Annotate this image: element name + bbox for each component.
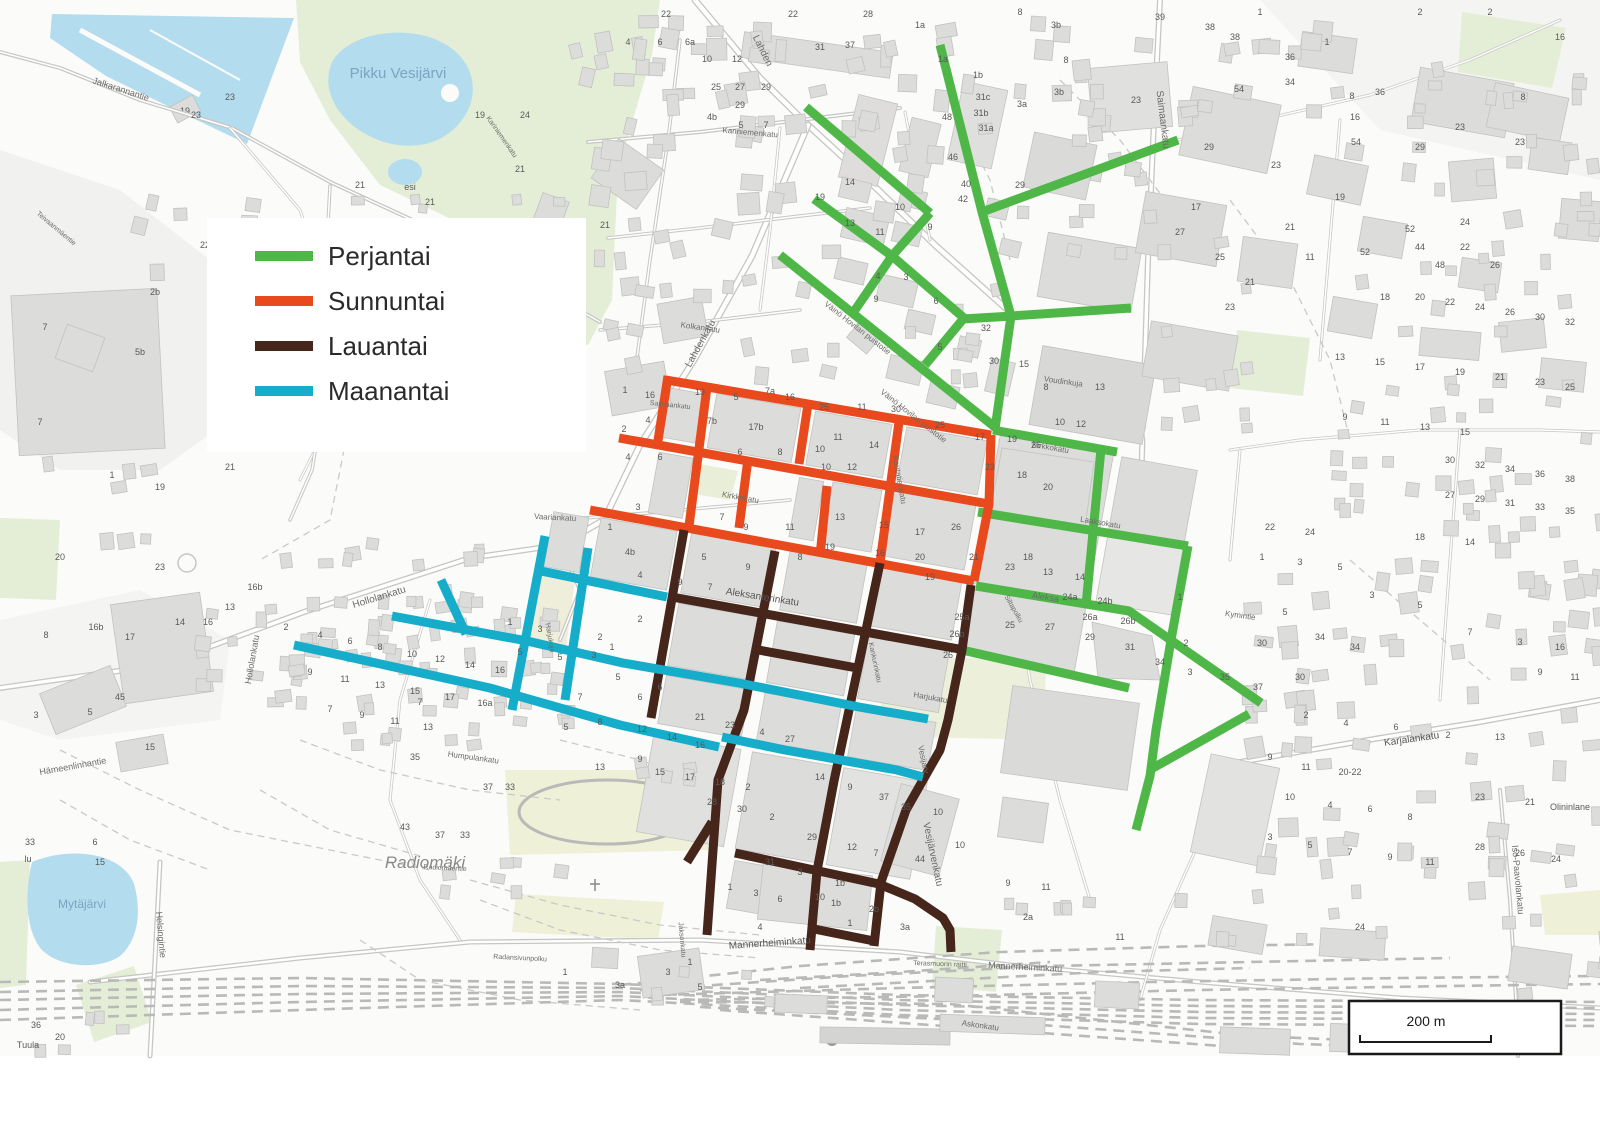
svg-text:4b: 4b	[625, 547, 635, 557]
svg-text:20: 20	[55, 552, 65, 562]
svg-text:10: 10	[702, 54, 712, 64]
svg-text:33: 33	[1535, 502, 1545, 512]
svg-text:31a: 31a	[978, 123, 993, 133]
svg-text:11: 11	[857, 402, 866, 412]
svg-text:30: 30	[1257, 638, 1267, 648]
svg-text:30: 30	[989, 356, 999, 366]
svg-text:14: 14	[465, 660, 475, 670]
svg-text:13: 13	[845, 218, 855, 228]
svg-text:4: 4	[645, 415, 650, 425]
svg-text:2: 2	[1303, 710, 1308, 720]
svg-text:26: 26	[1490, 260, 1500, 270]
svg-text:29: 29	[1015, 180, 1025, 190]
svg-text:13: 13	[1495, 732, 1505, 742]
svg-text:28: 28	[707, 797, 717, 807]
svg-text:37: 37	[435, 830, 445, 840]
svg-text:44: 44	[1415, 242, 1425, 252]
svg-text:23: 23	[155, 562, 165, 572]
svg-text:21: 21	[425, 197, 435, 207]
svg-text:20: 20	[1415, 292, 1425, 302]
svg-text:6: 6	[347, 636, 352, 646]
svg-text:21: 21	[355, 180, 365, 190]
svg-text:10: 10	[821, 462, 831, 472]
svg-text:16: 16	[1350, 112, 1360, 122]
svg-text:22: 22	[1445, 297, 1455, 307]
svg-text:7: 7	[42, 322, 47, 332]
svg-text:17: 17	[915, 527, 925, 537]
svg-text:Sunnuntai: Sunnuntai	[328, 286, 445, 316]
svg-text:13: 13	[225, 602, 235, 612]
svg-text:3a: 3a	[1017, 99, 1027, 109]
svg-text:32: 32	[1565, 317, 1575, 327]
svg-text:26b: 26b	[1120, 616, 1135, 626]
svg-text:25: 25	[711, 82, 721, 92]
svg-text:8: 8	[1349, 91, 1354, 101]
svg-text:15: 15	[1460, 427, 1470, 437]
svg-text:38: 38	[1565, 474, 1575, 484]
svg-text:21: 21	[695, 712, 705, 722]
svg-text:26: 26	[951, 522, 961, 532]
svg-text:Lauantai: Lauantai	[328, 331, 428, 361]
svg-text:25: 25	[819, 402, 829, 412]
svg-text:8: 8	[377, 642, 382, 652]
svg-text:19: 19	[925, 572, 935, 582]
svg-text:1: 1	[1257, 7, 1262, 17]
svg-text:8: 8	[1017, 7, 1022, 17]
svg-text:21: 21	[600, 220, 610, 230]
svg-text:25: 25	[1005, 620, 1015, 630]
svg-text:29: 29	[735, 100, 745, 110]
svg-text:14: 14	[1075, 572, 1085, 582]
svg-text:42: 42	[958, 194, 968, 204]
svg-text:6: 6	[777, 894, 782, 904]
svg-text:18: 18	[1023, 552, 1033, 562]
svg-text:16: 16	[1555, 642, 1565, 652]
svg-text:23: 23	[1225, 302, 1235, 312]
svg-text:7: 7	[417, 697, 422, 707]
svg-text:esi: esi	[404, 182, 416, 192]
svg-text:2b: 2b	[869, 904, 879, 914]
svg-text:17: 17	[1415, 362, 1425, 372]
svg-text:28: 28	[863, 9, 873, 19]
svg-text:27: 27	[1045, 622, 1055, 632]
svg-text:5: 5	[738, 120, 743, 130]
svg-text:7: 7	[873, 848, 878, 858]
svg-text:54: 54	[1351, 137, 1361, 147]
svg-text:36: 36	[1535, 469, 1545, 479]
svg-text:52: 52	[1405, 224, 1415, 234]
svg-text:15: 15	[145, 742, 155, 752]
svg-text:26a: 26a	[1082, 612, 1097, 622]
svg-text:3: 3	[537, 624, 542, 634]
svg-text:21: 21	[515, 164, 525, 174]
svg-text:23: 23	[1455, 122, 1465, 132]
svg-text:31: 31	[1505, 498, 1515, 508]
svg-text:11: 11	[1570, 672, 1579, 682]
svg-text:24: 24	[1551, 854, 1561, 864]
svg-text:23: 23	[1515, 137, 1525, 147]
svg-text:34: 34	[1155, 657, 1165, 667]
svg-text:9: 9	[637, 754, 642, 764]
svg-text:10: 10	[1055, 417, 1065, 427]
svg-text:16: 16	[875, 548, 885, 558]
svg-text:3a: 3a	[615, 980, 625, 990]
svg-text:22: 22	[1265, 522, 1275, 532]
svg-text:Mytäjärvi: Mytäjärvi	[58, 897, 106, 911]
svg-text:13: 13	[1420, 422, 1430, 432]
svg-text:5: 5	[563, 722, 568, 732]
svg-text:5: 5	[697, 982, 702, 992]
svg-text:6a: 6a	[685, 37, 695, 47]
svg-text:7: 7	[763, 120, 768, 130]
svg-text:4: 4	[757, 922, 762, 932]
svg-text:1: 1	[727, 882, 732, 892]
svg-text:34: 34	[1315, 632, 1325, 642]
svg-text:5: 5	[615, 672, 620, 682]
svg-text:4: 4	[317, 630, 322, 640]
svg-text:46: 46	[948, 152, 958, 162]
svg-text:15: 15	[1019, 359, 1029, 369]
svg-text:37: 37	[1253, 682, 1263, 692]
svg-text:30: 30	[1535, 312, 1545, 322]
svg-text:29: 29	[1085, 632, 1095, 642]
svg-text:1a: 1a	[915, 20, 925, 30]
svg-text:11: 11	[390, 716, 399, 726]
svg-text:16: 16	[1555, 32, 1565, 42]
svg-text:9: 9	[847, 782, 852, 792]
svg-text:3: 3	[635, 502, 640, 512]
svg-text:32: 32	[981, 323, 991, 333]
svg-text:31: 31	[815, 42, 825, 52]
svg-text:3: 3	[1517, 637, 1522, 647]
svg-text:2b: 2b	[150, 287, 160, 297]
svg-text:16: 16	[695, 740, 705, 750]
svg-text:5: 5	[557, 652, 562, 662]
svg-text:10: 10	[895, 202, 905, 212]
svg-text:15: 15	[655, 767, 665, 777]
svg-text:38: 38	[1205, 22, 1215, 32]
svg-text:43: 43	[400, 822, 410, 832]
svg-text:19: 19	[815, 192, 825, 202]
svg-text:9: 9	[677, 577, 682, 587]
svg-text:17: 17	[975, 432, 985, 442]
svg-text:28: 28	[1475, 842, 1485, 852]
svg-text:18: 18	[715, 777, 725, 787]
svg-text:19: 19	[1455, 367, 1465, 377]
svg-text:29: 29	[761, 82, 771, 92]
svg-text:26: 26	[1505, 307, 1515, 317]
svg-text:31: 31	[1125, 642, 1135, 652]
svg-text:7a: 7a	[765, 386, 775, 396]
svg-text:5: 5	[1282, 607, 1287, 617]
svg-text:9: 9	[873, 294, 878, 304]
svg-text:26: 26	[1515, 848, 1525, 858]
svg-text:16b: 16b	[247, 582, 262, 592]
svg-text:15: 15	[410, 686, 420, 696]
svg-text:45: 45	[115, 692, 125, 702]
svg-text:3b: 3b	[1054, 87, 1064, 97]
svg-text:19: 19	[1007, 434, 1017, 444]
svg-text:2: 2	[637, 614, 642, 624]
svg-text:11: 11	[1115, 932, 1124, 942]
svg-text:11: 11	[1425, 857, 1434, 867]
svg-text:33: 33	[505, 782, 515, 792]
svg-text:23: 23	[225, 92, 235, 102]
svg-text:36: 36	[1375, 87, 1385, 97]
svg-text:12: 12	[847, 842, 857, 852]
svg-text:7: 7	[327, 704, 332, 714]
svg-text:8: 8	[1063, 55, 1068, 65]
svg-text:23: 23	[985, 462, 995, 472]
svg-text:27: 27	[735, 82, 745, 92]
svg-text:11: 11	[340, 674, 349, 684]
svg-text:6: 6	[637, 692, 642, 702]
svg-text:7b: 7b	[707, 416, 717, 426]
svg-text:9: 9	[307, 667, 312, 677]
svg-text:19: 19	[155, 482, 165, 492]
svg-text:9: 9	[1387, 852, 1392, 862]
svg-text:1: 1	[609, 642, 614, 652]
svg-text:25: 25	[1565, 382, 1575, 392]
svg-text:29: 29	[1415, 142, 1425, 152]
svg-text:10: 10	[955, 840, 965, 850]
svg-text:24b: 24b	[1097, 596, 1112, 606]
svg-text:23: 23	[1005, 562, 1015, 572]
svg-text:12: 12	[1076, 419, 1086, 429]
svg-text:5: 5	[733, 392, 738, 402]
svg-text:Pikku Vesijärvi: Pikku Vesijärvi	[350, 65, 447, 82]
svg-text:15: 15	[95, 857, 105, 867]
svg-text:27: 27	[1175, 227, 1185, 237]
svg-text:3: 3	[1369, 590, 1374, 600]
svg-text:3: 3	[1297, 557, 1302, 567]
svg-text:8: 8	[43, 630, 48, 640]
svg-text:9: 9	[1342, 412, 1347, 422]
svg-text:19: 19	[825, 542, 835, 552]
svg-text:26b: 26b	[949, 629, 964, 639]
svg-text:2: 2	[1183, 638, 1188, 648]
svg-text:17: 17	[685, 772, 695, 782]
svg-text:29: 29	[1475, 494, 1485, 504]
svg-text:10: 10	[933, 807, 943, 817]
svg-text:10: 10	[407, 649, 417, 659]
svg-text:20: 20	[1043, 482, 1053, 492]
svg-text:6: 6	[1393, 722, 1398, 732]
svg-text:16: 16	[495, 665, 505, 675]
svg-text:8: 8	[1520, 92, 1525, 102]
svg-text:4: 4	[625, 452, 630, 462]
svg-text:3: 3	[33, 710, 38, 720]
svg-text:4b: 4b	[707, 112, 717, 122]
svg-text:11: 11	[875, 227, 884, 237]
svg-text:12: 12	[847, 462, 857, 472]
svg-text:1: 1	[1259, 552, 1264, 562]
svg-text:21: 21	[1495, 372, 1505, 382]
svg-text:33: 33	[25, 837, 35, 847]
svg-text:2: 2	[597, 632, 602, 642]
svg-text:21: 21	[1245, 277, 1255, 287]
svg-text:3b: 3b	[1051, 20, 1061, 30]
svg-text:17b: 17b	[748, 422, 763, 432]
svg-text:34: 34	[1350, 642, 1360, 652]
svg-text:18: 18	[1017, 470, 1027, 480]
svg-text:13: 13	[423, 722, 433, 732]
svg-text:6: 6	[737, 447, 742, 457]
svg-text:20: 20	[915, 552, 925, 562]
svg-text:3: 3	[591, 650, 596, 660]
svg-text:6: 6	[657, 452, 662, 462]
svg-text:16b: 16b	[88, 622, 103, 632]
svg-text:6: 6	[1367, 804, 1372, 814]
svg-text:32: 32	[1475, 460, 1485, 470]
svg-text:23: 23	[1271, 160, 1281, 170]
svg-text:35: 35	[410, 752, 420, 762]
svg-text:31: 31	[765, 857, 775, 867]
svg-text:1b: 1b	[835, 878, 845, 888]
svg-text:24: 24	[1460, 217, 1470, 227]
svg-text:24: 24	[1305, 527, 1315, 537]
svg-text:11: 11	[833, 432, 842, 442]
svg-text:14: 14	[815, 772, 825, 782]
svg-text:18: 18	[1415, 532, 1425, 542]
svg-text:29: 29	[1204, 142, 1214, 152]
svg-text:9: 9	[927, 222, 932, 232]
svg-text:11: 11	[1305, 252, 1314, 262]
svg-text:33: 33	[460, 830, 470, 840]
svg-text:3: 3	[753, 888, 758, 898]
svg-text:12: 12	[435, 654, 445, 664]
svg-text:2: 2	[621, 424, 626, 434]
svg-text:10: 10	[815, 444, 825, 454]
svg-text:2: 2	[745, 782, 750, 792]
svg-text:4: 4	[637, 570, 642, 580]
svg-text:6: 6	[657, 37, 662, 47]
svg-text:18: 18	[1380, 292, 1390, 302]
svg-text:19: 19	[695, 387, 705, 397]
svg-text:14: 14	[175, 617, 185, 627]
svg-text:3: 3	[1187, 667, 1192, 677]
svg-text:37: 37	[879, 792, 889, 802]
svg-text:35: 35	[1565, 506, 1575, 516]
svg-text:13: 13	[835, 512, 845, 522]
svg-text:13: 13	[595, 762, 605, 772]
svg-text:1: 1	[562, 967, 567, 977]
svg-text:25: 25	[1215, 252, 1225, 262]
svg-text:8: 8	[1407, 812, 1412, 822]
svg-text:14: 14	[667, 732, 677, 742]
svg-text:3: 3	[797, 867, 802, 877]
svg-text:6: 6	[657, 682, 662, 692]
svg-text:14: 14	[869, 440, 879, 450]
svg-text:30: 30	[1295, 672, 1305, 682]
svg-text:24: 24	[1475, 302, 1485, 312]
svg-text:11: 11	[1301, 762, 1310, 772]
svg-text:44: 44	[915, 854, 925, 864]
svg-text:15: 15	[879, 520, 889, 530]
svg-text:4: 4	[1343, 718, 1348, 728]
svg-text:Tuula: Tuula	[17, 1040, 39, 1050]
svg-text:2: 2	[769, 812, 774, 822]
svg-text:3: 3	[1267, 832, 1272, 842]
svg-text:4: 4	[625, 37, 630, 47]
svg-text:48: 48	[1435, 260, 1445, 270]
svg-text:13: 13	[1095, 382, 1105, 392]
svg-text:3: 3	[665, 967, 670, 977]
svg-text:14: 14	[845, 177, 855, 187]
svg-text:23: 23	[1475, 792, 1485, 802]
svg-text:5: 5	[1337, 562, 1342, 572]
svg-text:1: 1	[847, 918, 852, 928]
svg-text:54: 54	[1234, 84, 1244, 94]
svg-text:20-22: 20-22	[1338, 767, 1361, 777]
svg-text:Radiomäki: Radiomäki	[385, 853, 467, 872]
svg-text:7: 7	[577, 692, 582, 702]
svg-text:7: 7	[1347, 847, 1352, 857]
svg-text:30: 30	[1445, 455, 1455, 465]
svg-text:6: 6	[933, 296, 938, 306]
svg-text:Perjantai: Perjantai	[328, 241, 431, 271]
svg-text:9: 9	[1005, 878, 1010, 888]
svg-text:8: 8	[777, 447, 782, 457]
svg-text:52: 52	[1360, 247, 1370, 257]
svg-text:25a: 25a	[954, 612, 969, 622]
svg-text:1: 1	[607, 522, 612, 532]
svg-text:12: 12	[732, 54, 742, 64]
svg-text:5: 5	[701, 552, 706, 562]
svg-text:37: 37	[483, 782, 493, 792]
svg-text:17: 17	[125, 632, 135, 642]
svg-text:40: 40	[961, 179, 971, 189]
svg-text:26: 26	[943, 650, 953, 660]
svg-text:9: 9	[1267, 752, 1272, 762]
svg-text:15: 15	[1375, 357, 1385, 367]
svg-text:24: 24	[520, 110, 530, 120]
svg-text:14: 14	[1465, 537, 1475, 547]
svg-text:6: 6	[92, 837, 97, 847]
svg-text:Olininlane: Olininlane	[1550, 802, 1590, 812]
svg-text:2: 2	[283, 622, 288, 632]
svg-text:29: 29	[807, 832, 817, 842]
svg-text:20: 20	[55, 1032, 65, 1042]
svg-text:8: 8	[1043, 382, 1048, 392]
svg-text:19: 19	[475, 110, 485, 120]
svg-text:23: 23	[1535, 377, 1545, 387]
svg-text:35: 35	[1220, 672, 1230, 682]
svg-text:3: 3	[903, 272, 908, 282]
svg-text:200 m: 200 m	[1407, 1013, 1446, 1029]
svg-text:5b: 5b	[135, 347, 145, 357]
svg-text:7: 7	[719, 512, 724, 522]
svg-text:1: 1	[507, 617, 512, 627]
svg-text:2: 2	[1417, 7, 1422, 17]
svg-text:27: 27	[1445, 490, 1455, 500]
svg-text:36: 36	[31, 1020, 41, 1030]
svg-text:37: 37	[845, 40, 855, 50]
svg-text:35: 35	[901, 802, 911, 812]
svg-text:21: 21	[1525, 797, 1535, 807]
svg-text:17: 17	[445, 692, 455, 702]
svg-text:7: 7	[37, 417, 42, 427]
svg-text:11: 11	[785, 522, 794, 532]
svg-text:4: 4	[1327, 800, 1332, 810]
svg-text:36: 36	[1285, 52, 1295, 62]
svg-text:5: 5	[1307, 840, 1312, 850]
svg-text:1b: 1b	[831, 898, 841, 908]
svg-text:5: 5	[937, 342, 942, 352]
svg-text:11: 11	[1041, 882, 1050, 892]
svg-text:24a: 24a	[1062, 592, 1077, 602]
svg-text:21: 21	[969, 552, 979, 562]
